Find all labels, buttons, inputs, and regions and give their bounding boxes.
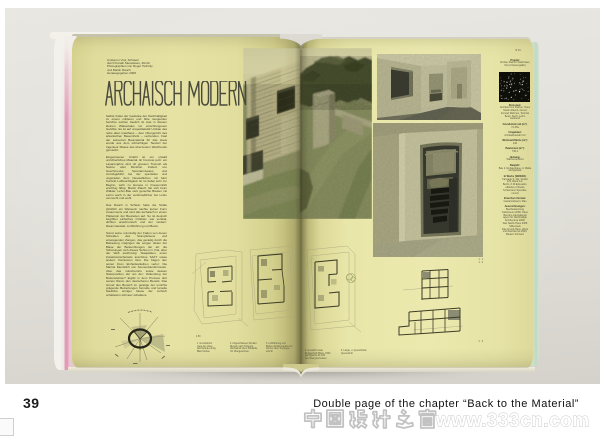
svg-text:www.333cn.com: www.333cn.com — [435, 411, 590, 432]
